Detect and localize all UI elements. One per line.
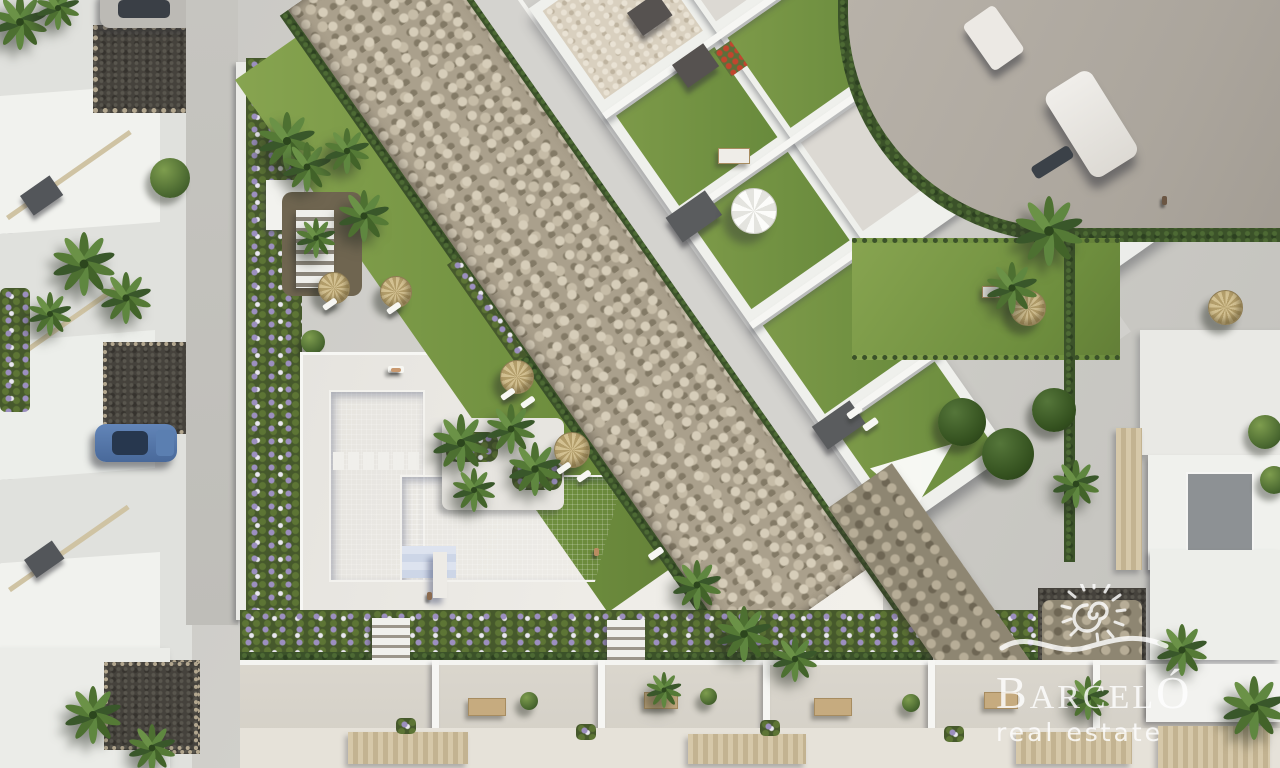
palm-tree (1014, 196, 1084, 266)
straw-umbrella (500, 360, 534, 394)
tree (938, 398, 986, 446)
silver-car-windshield (118, 0, 170, 18)
terrace-divider (432, 660, 439, 730)
brand-initial: B (996, 667, 1030, 718)
palm-tree (100, 272, 152, 324)
white-parasol (731, 188, 777, 234)
potted-tree (902, 694, 920, 712)
plaza-shrub (150, 158, 190, 198)
palm-tree (672, 560, 722, 610)
straw-umbrella (1208, 290, 1243, 325)
stepping-stone (348, 452, 359, 470)
stepping-stone (333, 452, 344, 470)
thatch-pergola (1116, 428, 1142, 570)
sun-spiral-wave-icon (996, 584, 1172, 670)
stepping-stone (408, 452, 419, 470)
palm-tree (1052, 460, 1100, 508)
palm-tree (338, 190, 390, 242)
palm-tree (296, 218, 336, 258)
flower-bed (0, 288, 30, 412)
watermark-brand: BARCELÓ (996, 670, 1196, 716)
street-wall (236, 62, 246, 620)
palm-tree (128, 724, 176, 768)
gravel-driveway (103, 342, 199, 434)
aerial-render-canvas: BARCELÓ real estate (0, 0, 1280, 768)
stepping-stone (378, 452, 389, 470)
pool-steps (402, 546, 456, 578)
shrub (301, 330, 325, 354)
shrub (1260, 466, 1280, 494)
palm-tree (646, 672, 682, 708)
terrace-divider (598, 660, 605, 730)
terrace-pergola (348, 732, 468, 764)
palm-tree (452, 468, 496, 512)
palm-tree (324, 128, 370, 174)
blue-car-hood (156, 430, 174, 456)
terrace-flower-pot (944, 726, 964, 742)
stepping-stone (363, 452, 374, 470)
brand-middle: ARCEL (1030, 679, 1156, 716)
terrace-dining-table (468, 698, 506, 716)
terrace-dining-table (814, 698, 852, 716)
rooftop-dining-table (718, 148, 750, 164)
blue-car-glass (112, 431, 148, 455)
brand-final: Ó (1156, 667, 1192, 718)
pedestrian (1162, 196, 1167, 205)
watermark-tagline: real estate (996, 718, 1196, 747)
palm-tree (1222, 676, 1280, 740)
potted-tree (520, 692, 538, 710)
sunbather (391, 368, 401, 372)
terrace-pergola (688, 734, 806, 764)
palm-tree (432, 414, 490, 472)
palm-tree (28, 292, 72, 336)
palm-tree (986, 262, 1038, 314)
terrace-divider (928, 660, 935, 730)
watermark: BARCELÓ real estate (996, 584, 1196, 747)
terrace-flower-pot (760, 720, 780, 736)
terrace-flower-pot (396, 718, 416, 734)
palm-tree (716, 606, 772, 662)
street (186, 0, 238, 625)
deck-walker (427, 592, 432, 600)
shrub (1248, 415, 1280, 449)
pool-wader (594, 548, 599, 556)
potted-tree (700, 688, 717, 705)
tree (1032, 388, 1076, 432)
right-building-roof (1186, 472, 1254, 560)
terrace-flower-pot (576, 724, 596, 740)
palm-tree (64, 686, 122, 744)
garden-stairs (372, 618, 410, 664)
palm-tree (772, 636, 818, 682)
tree (982, 428, 1034, 480)
pool-pier (433, 552, 447, 598)
stepping-stone (393, 452, 404, 470)
palm-tree (508, 442, 562, 496)
palm-tree (36, 0, 80, 30)
